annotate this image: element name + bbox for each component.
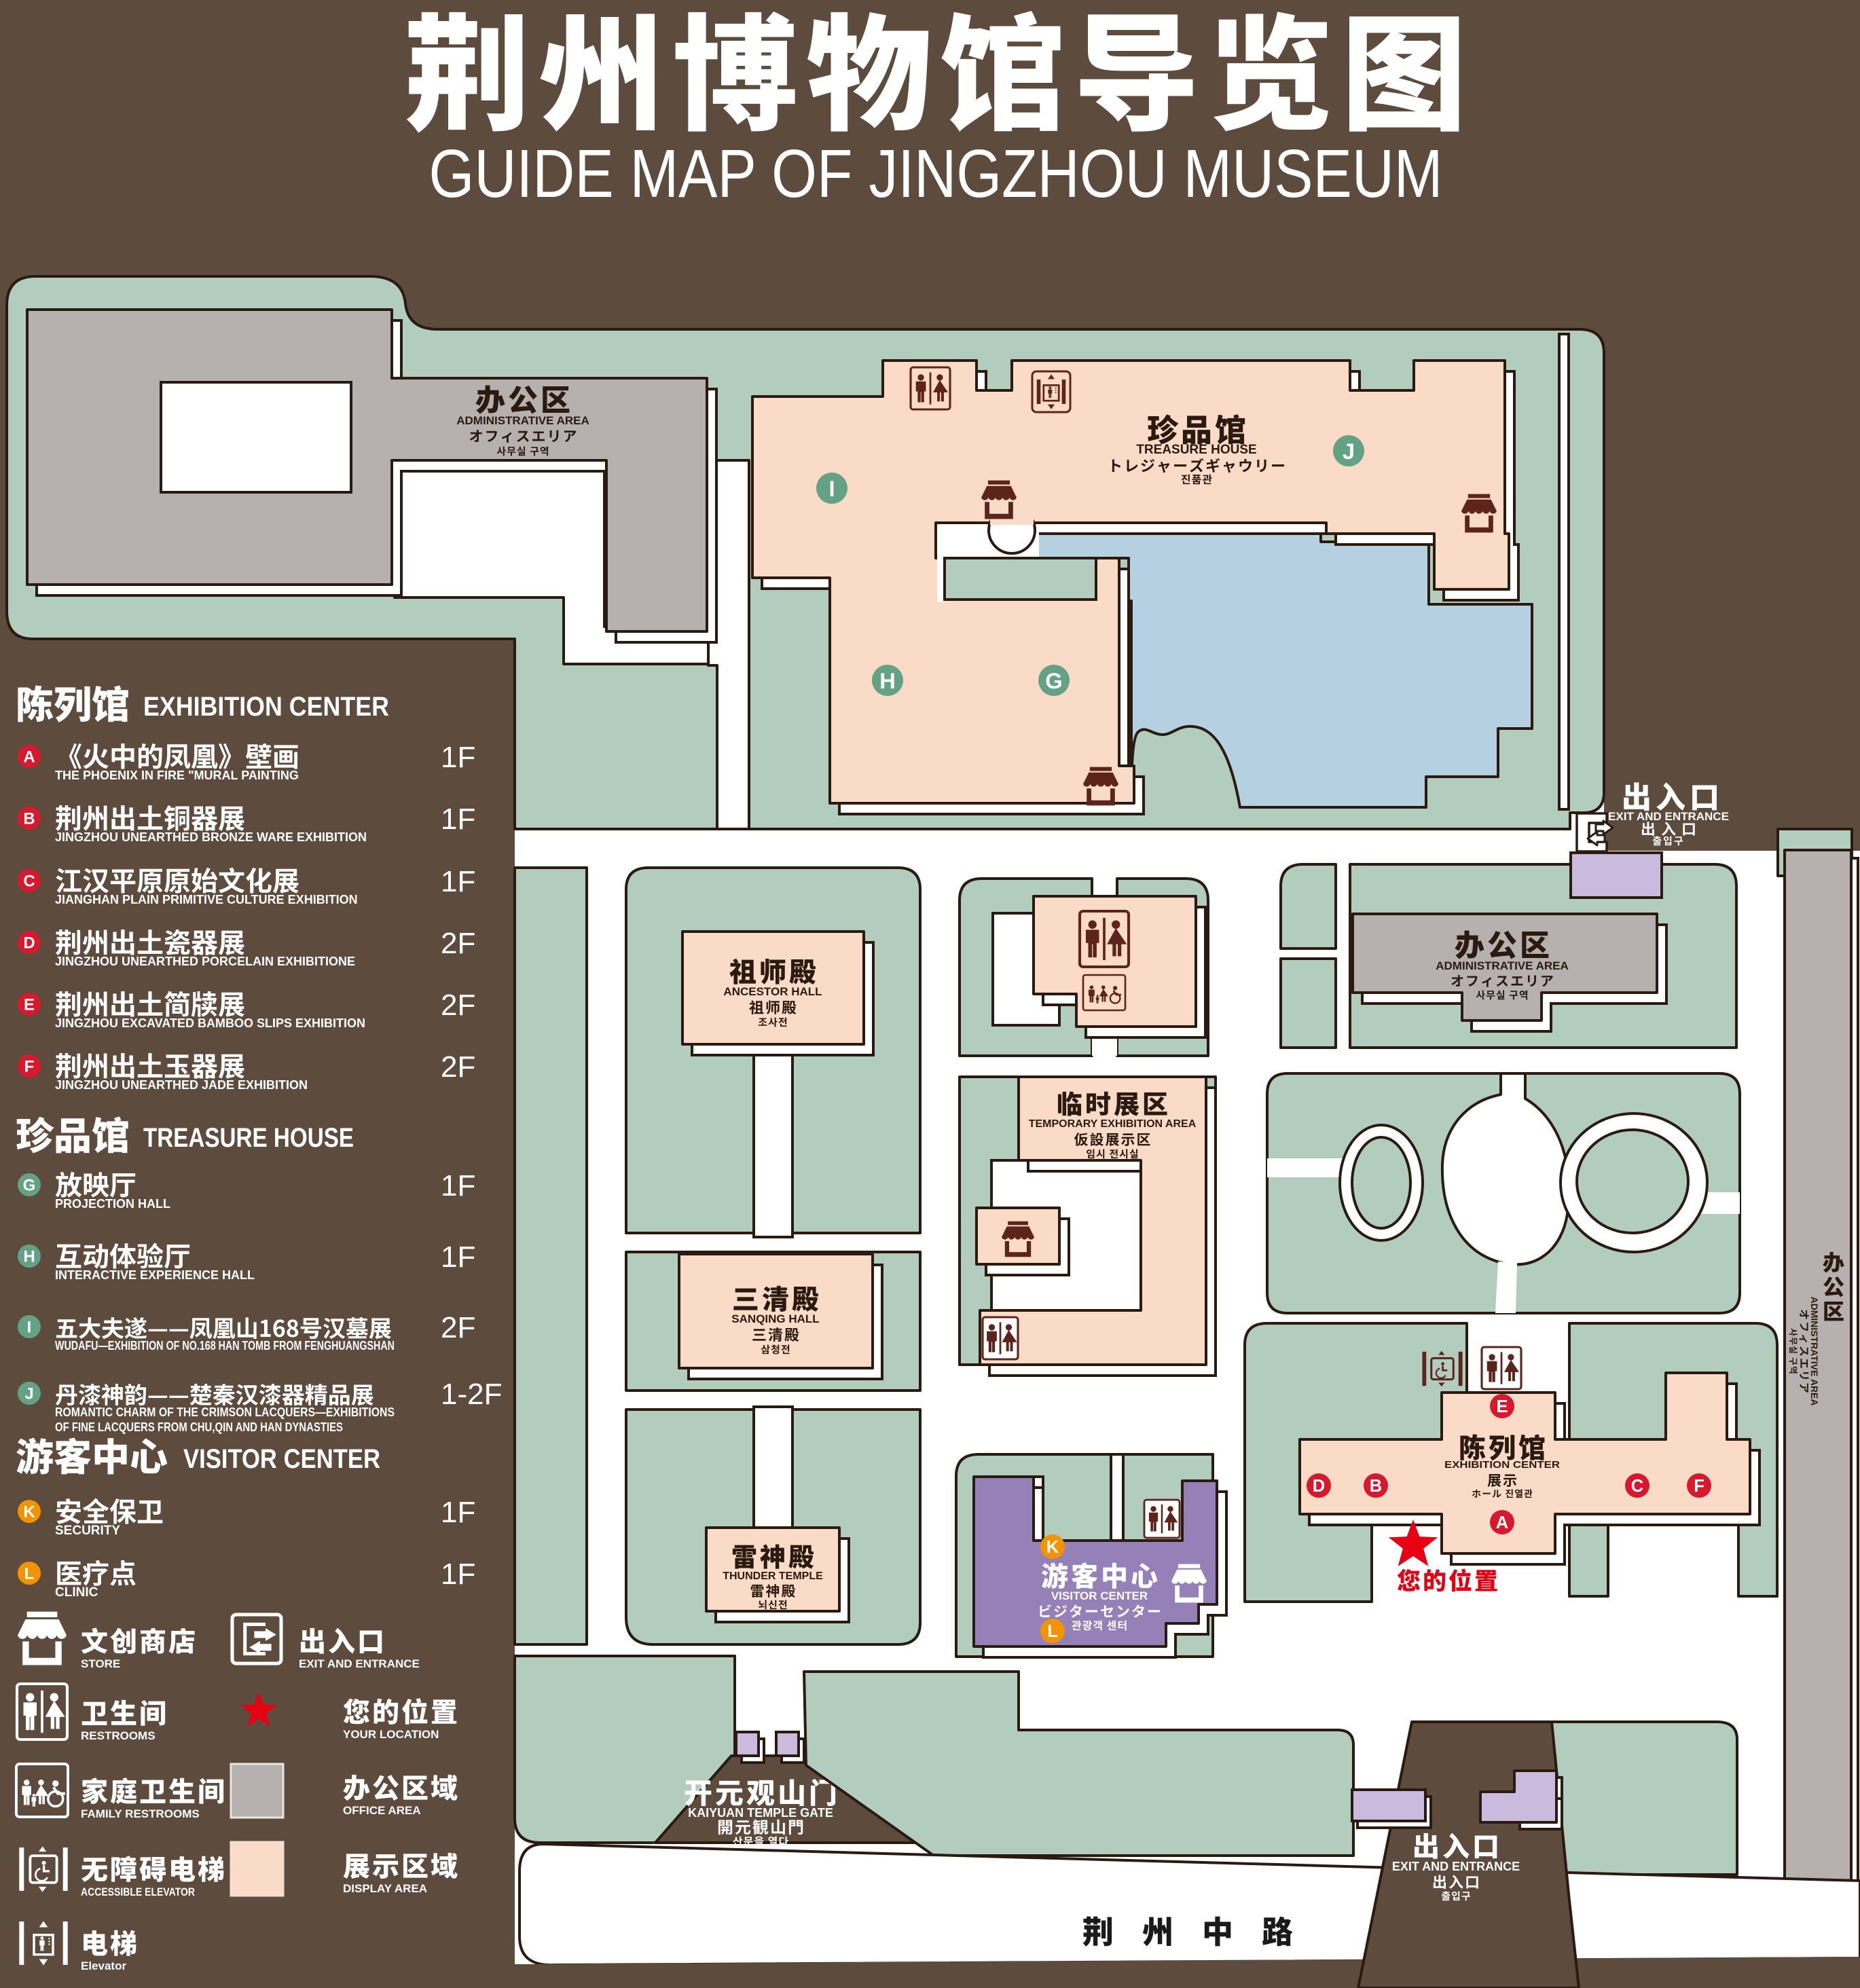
svg-text:OFFICE AREA: OFFICE AREA: [343, 1804, 421, 1817]
svg-text:THE PHOENIX IN FIRE "MURAL PAI: THE PHOENIX IN FIRE "MURAL PAINTING: [55, 769, 299, 782]
svg-text:OF FINE LACQUERS FROM CHU,QIN: OF FINE LACQUERS FROM CHU,QIN AND HAN DY…: [55, 1420, 343, 1434]
svg-text:EXIT AND ENTRANCE: EXIT AND ENTRANCE: [1608, 810, 1729, 823]
svg-text:JINGZHOU EXCAVATED BAMBOO SLIP: JINGZHOU EXCAVATED BAMBOO SLIPS EXHIBITI…: [55, 1016, 365, 1030]
svg-text:H: H: [879, 668, 896, 693]
svg-text:RESTROOMS: RESTROOMS: [81, 1729, 156, 1742]
svg-text:TREASURE HOUSE: TREASURE HOUSE: [1136, 443, 1256, 457]
svg-text:ACCESSIBLE ELEVATOR: ACCESSIBLE ELEVATOR: [81, 1885, 195, 1898]
svg-text:C: C: [23, 872, 35, 891]
svg-text:I: I: [27, 1319, 32, 1337]
svg-text:F: F: [1694, 1477, 1704, 1496]
svg-text:CLINIC: CLINIC: [55, 1585, 98, 1600]
svg-text:1F: 1F: [441, 803, 475, 836]
svg-text:1F: 1F: [441, 1558, 475, 1591]
svg-text:H: H: [23, 1248, 35, 1266]
svg-text:VISITOR CENTER: VISITOR CENTER: [183, 1444, 380, 1474]
svg-text:L: L: [1047, 1622, 1058, 1641]
svg-text:D: D: [23, 934, 35, 953]
svg-text:G: G: [23, 1177, 36, 1195]
svg-text:YOUR LOCATION: YOUR LOCATION: [343, 1728, 439, 1741]
svg-text:1F: 1F: [441, 1240, 475, 1274]
svg-text:1F: 1F: [441, 1169, 475, 1202]
svg-text:C: C: [1631, 1477, 1643, 1496]
svg-text:VISITOR CENTER: VISITOR CENTER: [1051, 1589, 1148, 1602]
svg-text:2F: 2F: [441, 989, 475, 1022]
svg-text:1F: 1F: [441, 1496, 475, 1529]
svg-text:TEMPORARY EXHIBITION AREA: TEMPORARY EXHIBITION AREA: [1029, 1118, 1197, 1130]
svg-text:WUDAFU—EXHIBITION OF NO.168 HA: WUDAFU—EXHIBITION OF NO.168 HAN TOMB FRO…: [55, 1339, 395, 1352]
svg-text:1-2F: 1-2F: [441, 1378, 502, 1411]
svg-text:1F: 1F: [441, 741, 475, 774]
svg-text:SANQING HALL: SANQING HALL: [731, 1312, 819, 1325]
svg-text:STORE: STORE: [81, 1657, 120, 1670]
svg-text:K: K: [1046, 1538, 1059, 1557]
svg-text:JIANGHAN PLAIN PRIMITIVE CULTU: JIANGHAN PLAIN PRIMITIVE CULTURE EXHIBIT…: [55, 893, 358, 906]
svg-text:F: F: [24, 1058, 35, 1076]
svg-text:2F: 2F: [441, 1311, 475, 1344]
svg-text:1F: 1F: [441, 865, 475, 898]
svg-text:A: A: [23, 748, 35, 767]
svg-text:ADMINISTRATIVE AREA: ADMINISTRATIVE AREA: [456, 414, 589, 427]
svg-text:E: E: [24, 996, 35, 1014]
svg-text:D: D: [1313, 1477, 1325, 1496]
svg-text:FAMILY RESTROOMS: FAMILY RESTROOMS: [81, 1807, 200, 1820]
svg-text:JINGZHOU UNEARTHED PORCELAIN E: JINGZHOU UNEARTHED PORCELAIN EXHIBITIONE: [55, 955, 355, 968]
svg-text:JINGZHOU UNEARTHED JADE EXHIBI: JINGZHOU UNEARTHED JADE EXHIBITION: [55, 1078, 308, 1092]
svg-text:INTERACTIVE EXPERIENCE HALL: INTERACTIVE EXPERIENCE HALL: [55, 1268, 255, 1282]
svg-text:2F: 2F: [441, 1050, 475, 1084]
svg-text:KAIYUAN TEMPLE GATE: KAIYUAN TEMPLE GATE: [688, 1806, 833, 1820]
svg-text:A: A: [1496, 1513, 1508, 1532]
svg-text:JINGZHOU UNEARTHED BRONZE WARE: JINGZHOU UNEARTHED BRONZE WARE EXHIBITIO…: [55, 830, 367, 844]
svg-text:SECURITY: SECURITY: [55, 1524, 120, 1538]
svg-text:J: J: [1343, 439, 1355, 464]
svg-text:TREASURE HOUSE: TREASURE HOUSE: [143, 1123, 354, 1153]
svg-text:J: J: [24, 1385, 33, 1403]
svg-text:EXHIBITION CENTER: EXHIBITION CENTER: [143, 692, 389, 722]
svg-text:EXHIBITION CENTER: EXHIBITION CENTER: [1444, 1459, 1560, 1471]
svg-text:EXIT AND ENTRANCE: EXIT AND ENTRANCE: [299, 1657, 420, 1670]
svg-text:ROMANTIC CHARM OF THE CRIMSON: ROMANTIC CHARM OF THE CRIMSON LACQUERS—E…: [55, 1405, 395, 1419]
svg-text:PROJECTION HALL: PROJECTION HALL: [55, 1197, 170, 1211]
svg-text:I: I: [828, 476, 835, 501]
svg-text:L: L: [24, 1565, 35, 1583]
svg-text:G: G: [1045, 668, 1062, 693]
svg-text:THUNDER TEMPLE: THUNDER TEMPLE: [723, 1570, 823, 1582]
svg-text:Elevator: Elevator: [81, 1959, 126, 1972]
svg-text:B: B: [1370, 1477, 1382, 1496]
svg-text:ANCESTOR HALL: ANCESTOR HALL: [723, 985, 822, 998]
svg-text:2F: 2F: [441, 927, 475, 960]
svg-text:GUIDE MAP OF JINGZHOU MUSEUM: GUIDE MAP OF JINGZHOU MUSEUM: [429, 136, 1443, 212]
svg-text:E: E: [1496, 1397, 1508, 1416]
svg-text:K: K: [23, 1503, 35, 1522]
svg-text:ADMINISTRATIVE AREA: ADMINISTRATIVE AREA: [1436, 959, 1569, 972]
svg-text:DISPLAY AREA: DISPLAY AREA: [343, 1882, 427, 1895]
svg-text:ADMINISTRATIVE AREA: ADMINISTRATIVE AREA: [1809, 1297, 1820, 1406]
svg-text:EXIT AND ENTRANCE: EXIT AND ENTRANCE: [1392, 1860, 1520, 1873]
svg-text:B: B: [23, 810, 35, 828]
